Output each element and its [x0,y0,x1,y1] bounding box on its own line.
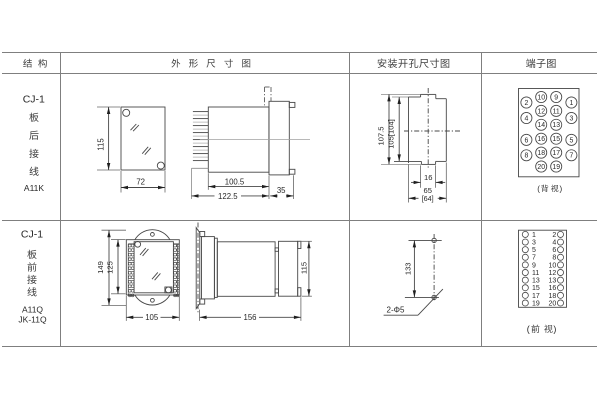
svg-text:1: 1 [569,100,573,107]
svg-text:12: 12 [537,108,545,115]
svg-text:11: 11 [532,270,539,277]
svg-text:9: 9 [554,94,558,101]
svg-text:13: 13 [552,122,560,129]
svg-text:JK-11Q: JK-11Q [18,315,47,325]
svg-text:100.5: 100.5 [225,177,245,186]
svg-text:18: 18 [549,293,557,300]
svg-text:133: 133 [404,262,413,275]
svg-text:19: 19 [552,164,560,171]
svg-text:7: 7 [569,153,573,160]
svg-text:5: 5 [569,137,573,144]
svg-text:(: ( [537,184,540,193]
svg-text:A11Q: A11Q [22,304,43,314]
svg-text:A11K: A11K [24,183,44,193]
svg-text:125: 125 [106,261,115,274]
svg-text:8: 8 [524,153,528,160]
svg-text:CJ-1: CJ-1 [21,229,43,241]
svg-text:CJ-1: CJ-1 [23,93,45,105]
svg-text:13: 13 [549,278,557,285]
svg-text:122.5: 122.5 [218,192,238,201]
svg-text:2: 2 [552,232,556,239]
svg-text:4: 4 [552,239,556,246]
svg-text:13: 13 [532,278,540,285]
svg-text:20: 20 [537,164,545,171]
svg-text:107.5: 107.5 [376,126,385,145]
svg-text:35: 35 [277,186,286,195]
svg-text:20: 20 [549,300,557,307]
svg-text:17: 17 [532,293,540,300]
svg-text:19: 19 [532,300,540,307]
svg-text:115: 115 [96,138,105,151]
svg-text:156: 156 [243,313,256,322]
svg-text:105[104]: 105[104] [387,119,396,149]
svg-text:2-Φ5: 2-Φ5 [387,305,405,314]
svg-text:3: 3 [569,115,573,122]
svg-text:1: 1 [532,232,536,239]
svg-text:16: 16 [549,285,557,292]
svg-text:3: 3 [532,239,536,246]
svg-text:6: 6 [524,137,528,144]
svg-text:16: 16 [424,173,432,182]
svg-text:8: 8 [552,255,556,262]
svg-text:12: 12 [549,270,557,277]
svg-text:10: 10 [537,94,545,101]
svg-text:10: 10 [549,262,557,269]
svg-text:5: 5 [532,247,536,254]
svg-text:105: 105 [145,313,159,322]
svg-text:72: 72 [136,177,145,186]
svg-text:115: 115 [299,262,308,274]
svg-text:6: 6 [552,247,556,254]
svg-text:18: 18 [537,150,545,157]
svg-text:2: 2 [524,100,528,107]
svg-text:9: 9 [532,262,536,269]
svg-text:): ) [559,184,562,193]
svg-text:14: 14 [537,122,545,129]
svg-text:15: 15 [532,285,540,292]
svg-text:149: 149 [96,261,105,274]
svg-text:): ) [553,324,556,334]
svg-text:16: 16 [537,136,545,143]
svg-text:[64]: [64] [422,194,434,203]
svg-text:7: 7 [532,255,536,262]
svg-text:4: 4 [524,115,528,122]
svg-text:17: 17 [552,150,560,157]
svg-text:11: 11 [553,108,560,115]
svg-text:(: ( [527,324,530,334]
svg-text:15: 15 [552,136,560,143]
